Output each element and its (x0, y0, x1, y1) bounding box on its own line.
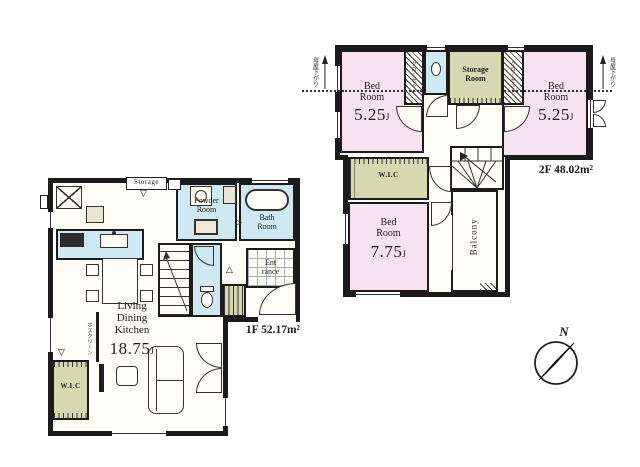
door-swing-icon (58, 349, 65, 358)
bed-size-value: 5.25 (538, 105, 570, 124)
window-icon (223, 398, 228, 426)
f2-eaves-note-left: 母屋下がり (311, 52, 317, 92)
window-icon (427, 45, 445, 50)
f1-shoe-closet (222, 284, 246, 317)
kitchen-sink-icon (100, 234, 128, 248)
arrow-up-icon (598, 55, 608, 91)
ldk-size-unit: J (150, 346, 154, 356)
compass-icon (530, 330, 582, 388)
f1-void-box-icon (56, 186, 82, 209)
toilet-icon (431, 62, 441, 76)
bathtub-icon (245, 189, 289, 211)
refrigerator-icon (86, 206, 104, 223)
ldk-line3: Kitchen (92, 325, 172, 337)
f2-stairs (450, 146, 504, 190)
f1-storage-label: Storage (126, 179, 167, 187)
f1-hoscreen-label: ホスクリーン (85, 314, 91, 362)
f2-closet-left-label: クローゼット (409, 54, 415, 101)
f1-area-label: 1F 52.17m² (232, 324, 300, 336)
entrance-line2: rance (247, 268, 294, 277)
toilet-tank-icon (200, 286, 214, 292)
f1-entrance-label: Ent rance (247, 259, 294, 276)
winder-stairs-icon (452, 148, 502, 188)
f1-entrance-opening (258, 315, 296, 322)
f1-wic-label: W.I.C (52, 383, 89, 391)
faucet-icon (112, 231, 116, 235)
bed-line2: Room (348, 229, 429, 240)
dining-table (102, 258, 138, 304)
f1-powder-label: Powder Room (177, 197, 236, 214)
window-icon (112, 431, 166, 436)
f1-ldk-label: Living Dining Kitchen (92, 301, 172, 337)
f2-storage-room-label: Storage Room (448, 66, 503, 83)
sofa-cushion-line (157, 380, 183, 381)
dining-chair (86, 264, 99, 276)
f2-bedroom-main-size: 7.75J (348, 243, 429, 261)
f2-eaves-note-right: 母屋下がり (608, 52, 614, 92)
arrow-up-icon (320, 55, 330, 91)
compass-north-label: N (557, 325, 571, 339)
f2-bedroom-left-label: Bed Room (340, 82, 404, 104)
shutter-door-arc (593, 100, 606, 113)
f2-closet-right-label: クローゼット (508, 54, 514, 101)
bed-size-unit: J (386, 112, 390, 122)
shutter-door-arc (593, 114, 606, 127)
shelf-icon (450, 98, 501, 103)
balcony-drain-icon (480, 283, 496, 290)
door-swing-icon (226, 266, 233, 275)
exterior-pipe-box (40, 195, 48, 209)
bed-size-unit: J (570, 112, 574, 122)
door-swing-icon (140, 190, 147, 199)
storage-line2: Room (448, 75, 503, 84)
f1-meter-box (168, 179, 181, 190)
bed-line2: Room (524, 93, 588, 104)
f2-bedroom-main-label: Bed Room (348, 218, 429, 240)
window-icon (48, 318, 53, 352)
hanger-pipe-icon (54, 413, 87, 418)
balcony-text: Balcony (470, 218, 480, 255)
toilet-icon (201, 292, 213, 308)
ldk-line2: Dining (92, 313, 172, 325)
f2-balcony-label: Balcony (451, 226, 498, 256)
f2-bedroom-left-size: 5.25J (340, 106, 404, 124)
dining-chair (140, 264, 153, 276)
hanger-pipe-icon (54, 362, 87, 367)
window-icon (48, 212, 53, 228)
window-icon (252, 178, 288, 183)
stove-icon (60, 233, 84, 247)
floor-plan-canvas: ホスクリーン Storage (0, 0, 640, 467)
tv-icon (99, 364, 104, 392)
vanity-sink-icon (194, 219, 218, 235)
ldk-size-value: 18.75 (110, 339, 151, 358)
f1-bath-label: Bath Room (241, 214, 293, 231)
bed-line2: Room (340, 93, 404, 104)
bed-size-value: 7.75 (371, 242, 403, 261)
window-icon (356, 292, 400, 297)
bed-size-unit: J (402, 249, 406, 259)
coffee-table (116, 366, 138, 386)
powder-line2: Room (177, 206, 236, 215)
bath-line2: Room (241, 223, 293, 232)
f2-bedroom-right-size: 5.25J (524, 106, 588, 124)
f1-ldk-size: 18.75J (92, 340, 172, 358)
bed-size-value: 5.25 (354, 105, 386, 124)
f2-bedroom-right-label: Bed Room (524, 82, 588, 104)
hanger-pipe-icon (350, 159, 427, 164)
f2-area-label: 2F 48.02m² (527, 164, 593, 176)
hanger-pipe-icon (350, 164, 355, 198)
f2-wic-label: W.I.C (348, 172, 429, 180)
window-icon (508, 45, 524, 50)
